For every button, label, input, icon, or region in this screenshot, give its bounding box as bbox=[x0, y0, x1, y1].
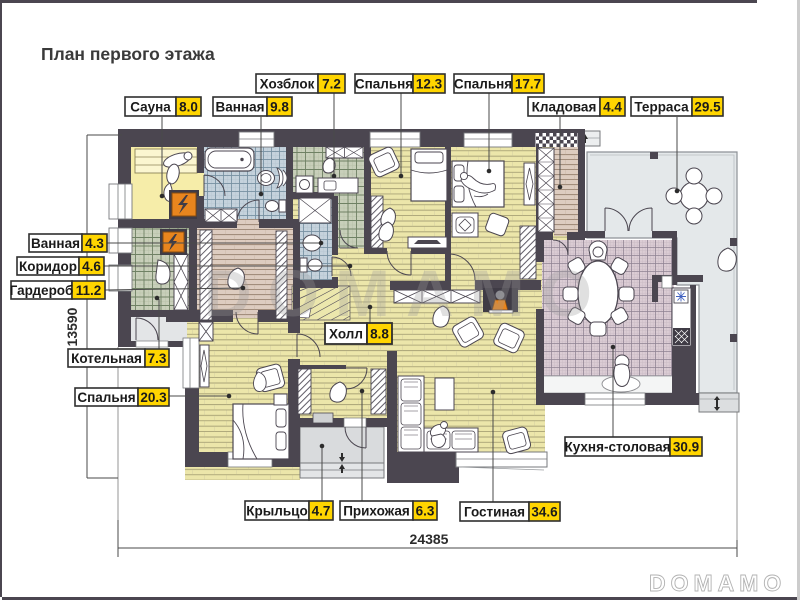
svg-text:20.3: 20.3 bbox=[140, 390, 167, 405]
svg-text:Прихожая: Прихожая bbox=[343, 504, 410, 519]
svg-text:Холл: Холл bbox=[329, 327, 363, 342]
svg-text:Ванная: Ванная bbox=[216, 100, 265, 115]
svg-text:DOMAMO: DOMAMO bbox=[649, 570, 786, 596]
svg-text:7.2: 7.2 bbox=[322, 77, 341, 92]
svg-text:Спальня: Спальня bbox=[77, 390, 135, 405]
svg-text:Коридор: Коридор bbox=[19, 259, 77, 274]
svg-text:Гардероб: Гардероб bbox=[10, 283, 74, 298]
svg-text:4.3: 4.3 bbox=[85, 236, 104, 251]
svg-text:4.4: 4.4 bbox=[603, 100, 622, 115]
svg-text:8.8: 8.8 bbox=[370, 327, 389, 342]
svg-text:Хозблок: Хозблок bbox=[260, 77, 315, 92]
svg-text:Ванная: Ванная bbox=[31, 236, 80, 251]
svg-text:6.3: 6.3 bbox=[416, 504, 435, 519]
svg-text:8.0: 8.0 bbox=[179, 100, 198, 115]
svg-text:30.9: 30.9 bbox=[673, 440, 699, 455]
svg-text:Кладовая: Кладовая bbox=[532, 100, 597, 115]
svg-text:4.7: 4.7 bbox=[312, 504, 331, 519]
svg-text:7.3: 7.3 bbox=[148, 351, 167, 366]
svg-text:Котельная: Котельная bbox=[71, 351, 142, 366]
svg-text:24385: 24385 bbox=[410, 531, 449, 547]
svg-text:13590: 13590 bbox=[64, 307, 80, 346]
svg-text:12.3: 12.3 bbox=[416, 77, 443, 92]
svg-text:План первого этажа: План первого этажа bbox=[41, 44, 215, 64]
svg-text:17.7: 17.7 bbox=[515, 77, 541, 92]
svg-text:Крыльцо: Крыльцо bbox=[246, 504, 307, 519]
svg-text:DOMAMO: DOMAMO bbox=[204, 256, 608, 330]
svg-text:Спальня: Спальня bbox=[454, 77, 512, 92]
svg-text:11.2: 11.2 bbox=[76, 283, 102, 298]
svg-text:Спальня: Спальня bbox=[355, 77, 413, 92]
svg-text:Терраса: Терраса bbox=[634, 100, 689, 115]
svg-text:Кухня-столовая: Кухня-столовая bbox=[565, 440, 671, 455]
svg-text:Сауна: Сауна bbox=[130, 100, 171, 115]
svg-text:Гостиная: Гостиная bbox=[464, 505, 525, 520]
svg-text:9.8: 9.8 bbox=[270, 100, 289, 115]
svg-text:34.6: 34.6 bbox=[531, 505, 558, 520]
svg-text:29.5: 29.5 bbox=[694, 100, 721, 115]
svg-text:4.6: 4.6 bbox=[82, 259, 101, 274]
